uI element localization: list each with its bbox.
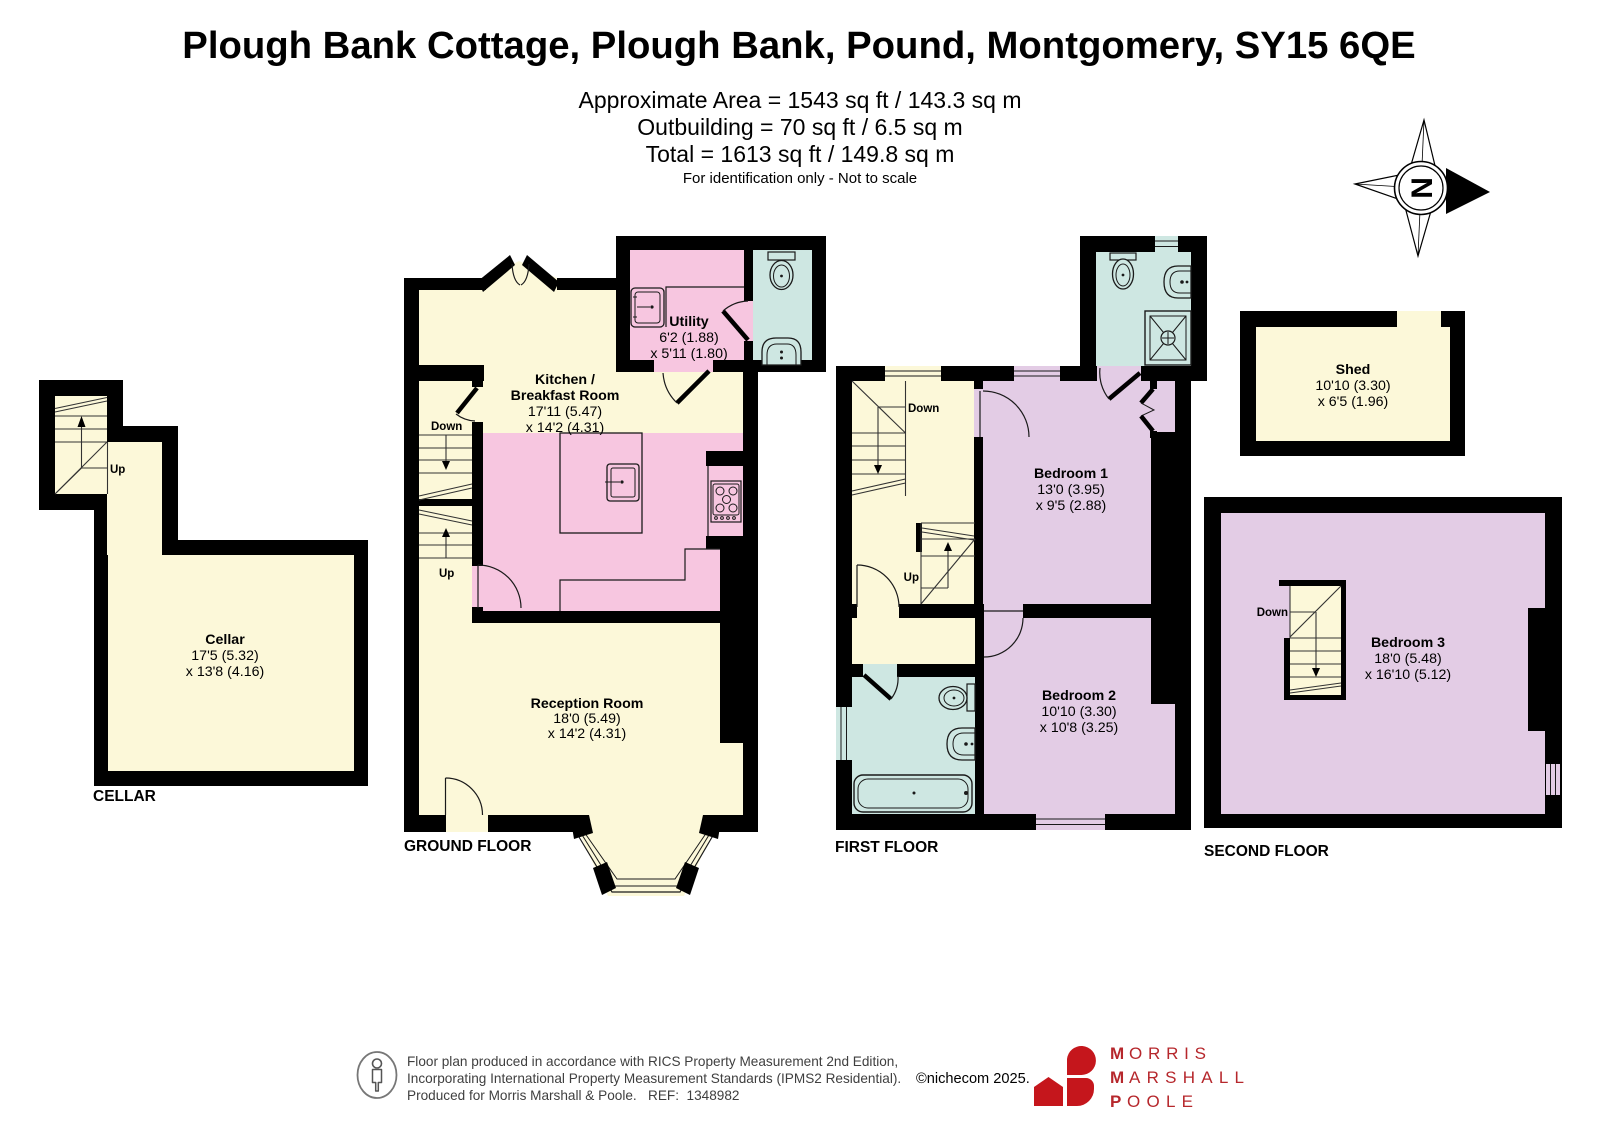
svg-text:Down: Down xyxy=(1257,607,1288,619)
svg-text:P: P xyxy=(1110,1092,1121,1111)
svg-text:10'10 (3.30): 10'10 (3.30) xyxy=(1315,378,1390,394)
svg-text:18'0 (5.48): 18'0 (5.48) xyxy=(1374,651,1441,667)
svg-text:18'0 (5.49): 18'0 (5.49) xyxy=(553,711,620,727)
svg-text:Produced for Morris Marshall &: Produced for Morris Marshall & Poole. RE… xyxy=(407,1088,739,1103)
svg-text:Down: Down xyxy=(908,403,939,415)
svg-text:x 14'2 (4.31): x 14'2 (4.31) xyxy=(548,726,626,742)
svg-text:M: M xyxy=(1110,1068,1124,1087)
svg-text:Floor plan produced in accorda: Floor plan produced in accordance with R… xyxy=(407,1054,898,1069)
svg-text:x 13'8 (4.16): x 13'8 (4.16) xyxy=(186,664,264,680)
svg-text:M: M xyxy=(1110,1044,1124,1063)
svg-text:Shed: Shed xyxy=(1336,362,1371,378)
svg-text:Up: Up xyxy=(439,568,454,580)
svg-text:x 5'11 (1.80): x 5'11 (1.80) xyxy=(650,346,727,362)
svg-text:10'10 (3.30): 10'10 (3.30) xyxy=(1041,704,1116,720)
svg-text:Bedroom 1: Bedroom 1 xyxy=(1034,466,1108,482)
svg-text:x 6'5 (1.96): x 6'5 (1.96) xyxy=(1318,394,1389,410)
svg-text:17'11 (5.47): 17'11 (5.47) xyxy=(528,404,602,420)
svg-text:Breakfast Room: Breakfast Room xyxy=(511,388,620,404)
svg-text:Down: Down xyxy=(431,421,462,433)
svg-text:6'2 (1.88): 6'2 (1.88) xyxy=(659,330,719,346)
svg-text:x 10'8 (3.25): x 10'8 (3.25) xyxy=(1040,720,1118,736)
svg-text:17'5 (5.32): 17'5 (5.32) xyxy=(191,648,258,664)
svg-text:x 16'10 (5.12): x 16'10 (5.12) xyxy=(1365,667,1451,683)
svg-text:Outbuilding = 70 sq ft / 6.5 s: Outbuilding = 70 sq ft / 6.5 sq m xyxy=(637,114,962,140)
svg-text:Total = 1613 sq ft / 149.8 sq: Total = 1613 sq ft / 149.8 sq m xyxy=(646,141,955,167)
svg-text:Cellar: Cellar xyxy=(205,632,245,648)
svg-text:FIRST FLOOR: FIRST FLOOR xyxy=(835,839,938,856)
svg-text:Up: Up xyxy=(904,572,919,584)
svg-text:Utility: Utility xyxy=(669,314,709,330)
svg-text:For identification only - Not: For identification only - Not to scale xyxy=(683,170,917,187)
svg-text:©nichecom 2025.: ©nichecom 2025. xyxy=(916,1071,1030,1087)
svg-text:Incorporating International Pr: Incorporating International Property Mea… xyxy=(407,1071,901,1086)
svg-text:CELLAR: CELLAR xyxy=(93,788,156,805)
svg-text:Bedroom 3: Bedroom 3 xyxy=(1371,635,1445,651)
svg-text:Reception Room: Reception Room xyxy=(531,696,644,712)
svg-text:Bedroom 2: Bedroom 2 xyxy=(1042,688,1116,704)
svg-text:x 9'5 (2.88): x 9'5 (2.88) xyxy=(1036,498,1107,514)
svg-text:Up: Up xyxy=(110,464,125,476)
svg-text:ORRIS: ORRIS xyxy=(1129,1044,1206,1063)
svg-text:SECOND FLOOR: SECOND FLOOR xyxy=(1204,843,1329,860)
svg-text:GROUND FLOOR: GROUND FLOOR xyxy=(404,838,531,855)
svg-text:13'0 (3.95): 13'0 (3.95) xyxy=(1037,482,1104,498)
svg-text:Approximate Area = 1543 sq ft: Approximate Area = 1543 sq ft / 143.3 sq… xyxy=(578,87,1021,113)
svg-text:Kitchen /: Kitchen / xyxy=(535,372,595,388)
svg-text:ARSHALL: ARSHALL xyxy=(1129,1068,1244,1087)
svg-text:x 14'2 (4.31): x 14'2 (4.31) xyxy=(526,420,604,436)
svg-text:N: N xyxy=(1405,177,1438,199)
svg-text:Plough Bank Cottage, Plough Ba: Plough Bank Cottage, Plough Bank, Pound,… xyxy=(182,24,1415,67)
